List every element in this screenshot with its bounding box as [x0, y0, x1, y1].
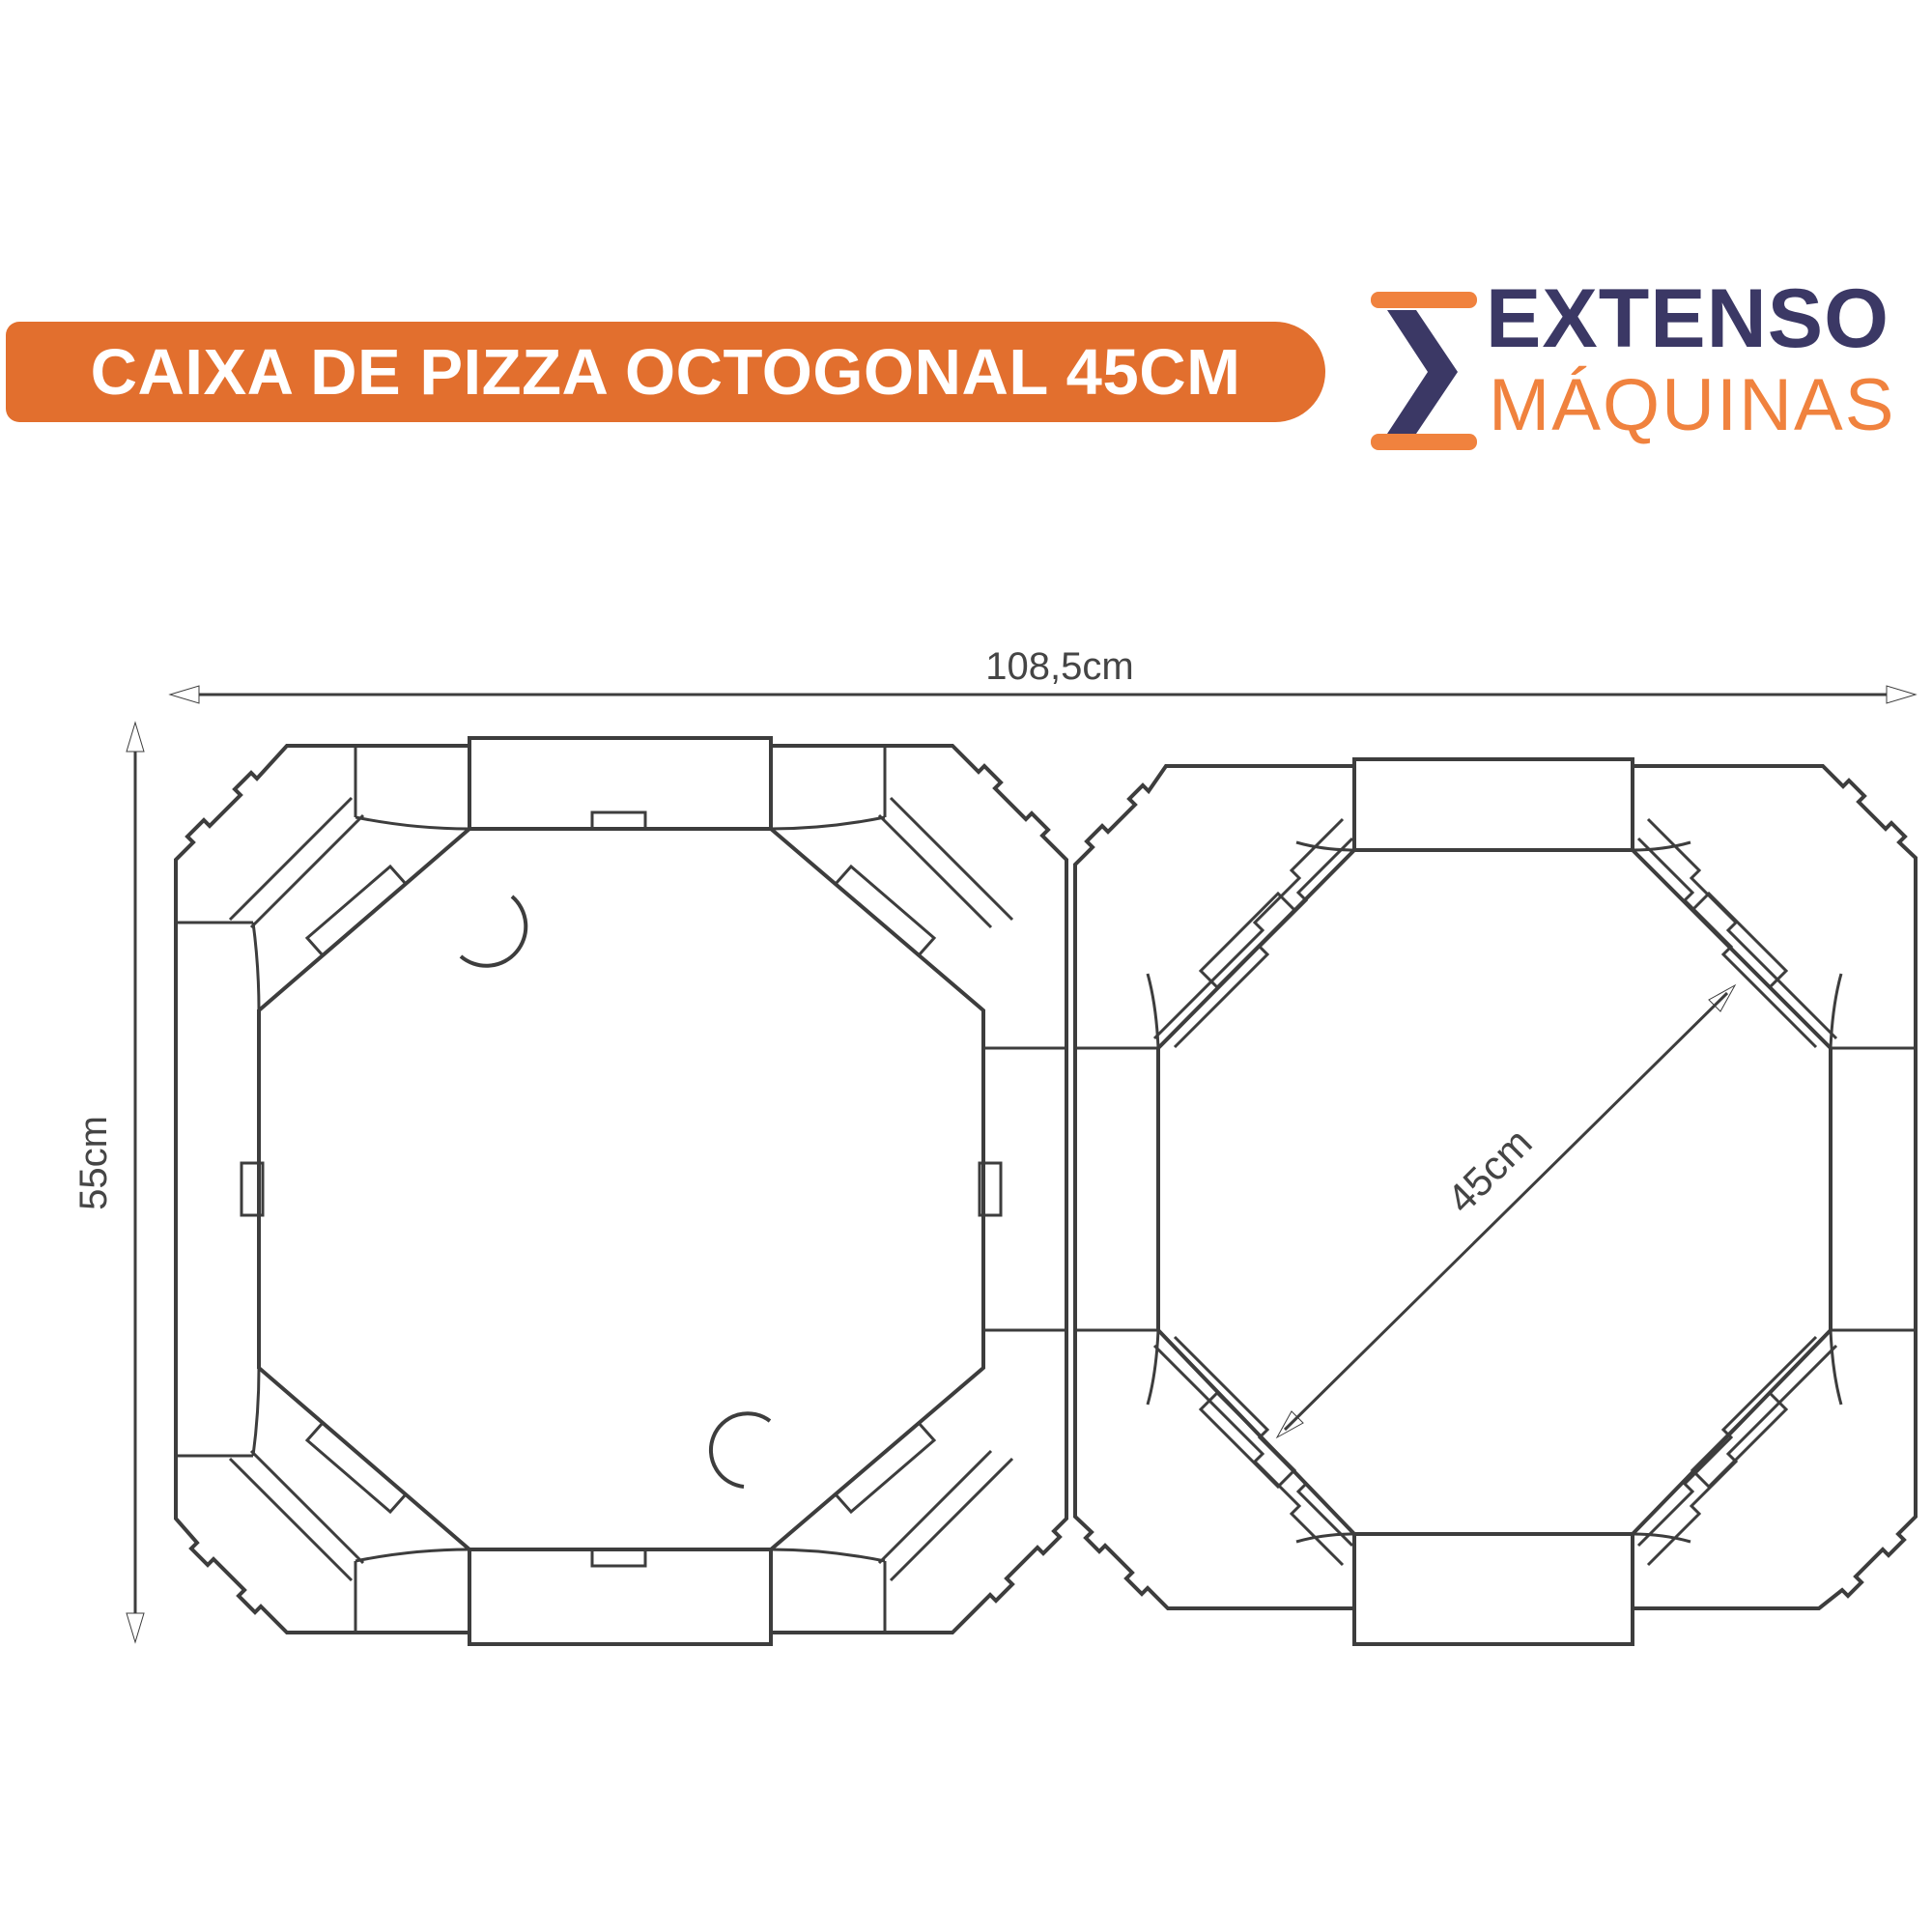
diagonal-dimension-label: 45cm	[1438, 1120, 1541, 1222]
lid-panel	[176, 738, 1066, 1644]
page: CAIXA DE PIZZA OCTOGONAL 45CM EXTENSO MÁ…	[0, 0, 1932, 1932]
lid-fold-lines	[176, 746, 1066, 1633]
arrow-left-icon	[170, 686, 199, 703]
lid-bottom-flap	[469, 1549, 771, 1644]
diagonal-dimension: 45cm	[1277, 985, 1735, 1437]
height-dimension-label: 55cm	[72, 1116, 115, 1210]
lid-top-tab	[592, 812, 645, 829]
arrow-up-icon	[127, 723, 144, 752]
crescent-cut-2	[711, 1413, 770, 1487]
arrow-right-icon	[1887, 686, 1916, 703]
crescent-cut-1	[461, 896, 526, 966]
base-top-flap	[1354, 759, 1633, 850]
base-panel	[1075, 759, 1916, 1644]
arrow-down-icon	[127, 1613, 144, 1642]
width-dimension: 108,5cm	[170, 645, 1916, 703]
lid-top-flap	[469, 738, 771, 829]
lid-corner-tabs	[307, 867, 934, 1512]
lid-corner-walls	[230, 798, 1012, 1580]
base-bottom-flap	[1354, 1534, 1633, 1644]
width-dimension-label: 108,5cm	[985, 645, 1133, 688]
diagonal-dimension-line	[1285, 993, 1727, 1430]
die-cut-diagram: 108,5cm 55cm	[0, 0, 1932, 1932]
lid-octagon-panel	[259, 829, 983, 1549]
lid-bottom-tab	[592, 1549, 645, 1566]
height-dimension: 55cm	[72, 723, 144, 1642]
base-outer-outline	[1075, 759, 1916, 1644]
